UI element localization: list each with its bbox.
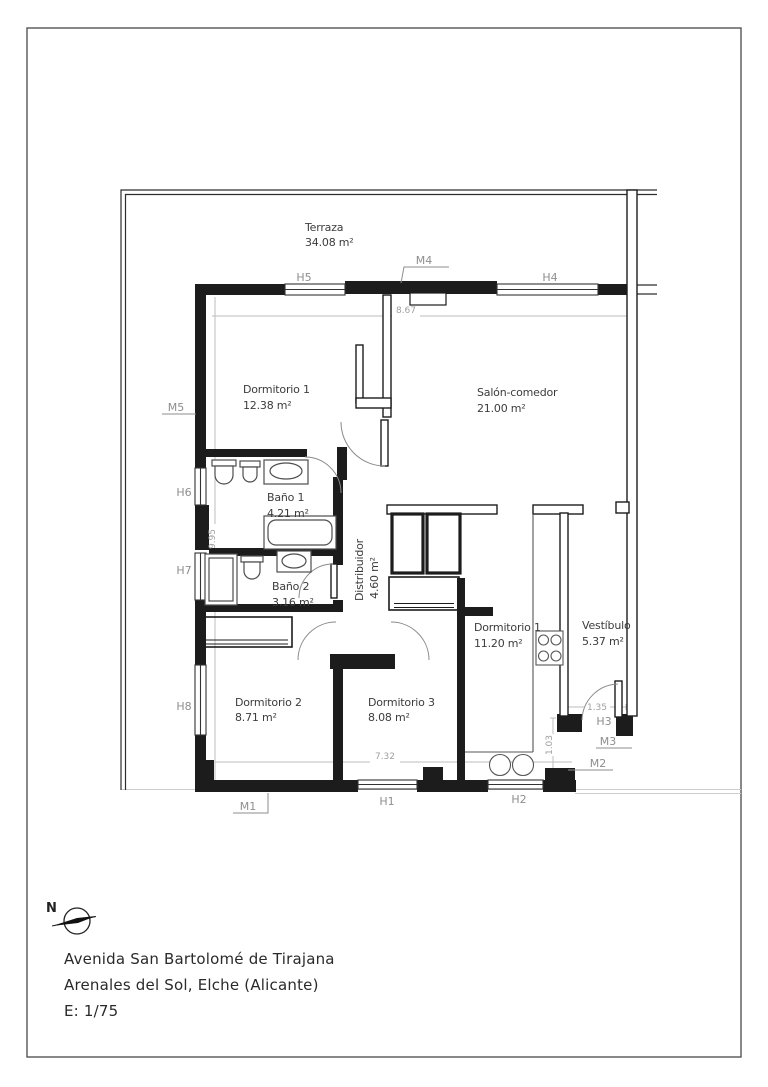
wardrobe-dorm3 [389,577,459,610]
opening-label-m2: M2 [590,757,607,770]
room-area-dormitorio1b: 11.20 m² [474,637,523,650]
dim-interior-width: 8.67 [396,306,416,316]
room-area-salon: 21.00 m² [477,402,526,415]
opening-label-h3: H3 [596,715,611,728]
room-label-vestibulo: Vestíbulo [582,619,631,632]
opening-label-m4: M4 [416,254,433,267]
dim-bottom-width: 7.32 [375,752,395,762]
hob-icon [536,631,563,665]
room-label-dormitorio1: Dormitorio 1 [243,383,310,396]
toilet-icon [212,460,236,484]
opening-label-h7: H7 [176,564,191,577]
opening-label-h6: H6 [176,486,191,499]
opening-label-m1: M1 [240,800,257,813]
floor-plan-drawing: Terraza 34.08 m² Dormitorio 1 12.38 m² S… [0,0,768,1087]
room-label-salon: Salón-comedor [477,386,558,399]
window-h1 [358,780,417,789]
room-label-dormitorio1b: Dormitorio 1 [474,621,541,634]
scale-label: E: 1/75 [64,1002,118,1020]
window-h8 [195,665,206,735]
room-area-terraza: 34.08 m² [305,236,354,249]
sink-icon [264,460,308,484]
door-dormitorio3 [391,622,429,660]
opening-label-h1: H1 [379,795,394,808]
opening-label-h4: H4 [542,271,557,284]
toilet-icon [241,556,263,579]
room-area-vestibulo: 5.37 m² [582,635,624,648]
closet-cell [392,514,423,573]
door-dormitorio1 [341,422,385,466]
opening-label-h2: H2 [511,793,526,806]
room-label-bano2: Baño 2 [272,580,309,593]
room-label-dormitorio3: Dormitorio 3 [368,696,435,709]
room-label-terraza: Terraza [304,221,343,234]
window-h5 [285,284,345,295]
shower-icon [205,554,237,605]
window-h4 [497,284,598,295]
kitchen-sink-icon [490,755,534,776]
room-area-distribuidor: 4.60 m² [368,557,381,599]
room-area-bano1: 4.21 m² [267,507,309,520]
room-area-bano2: 3.16 m² [272,596,314,609]
address-line-2: Arenales del Sol, Elche (Alicante) [64,976,319,994]
bathtub-icon [264,516,336,549]
opening-label-h8: H8 [176,700,191,713]
room-area-dormitorio2: 8.71 m² [235,711,277,724]
dim-kitchen-depth: 1.03 [545,735,555,755]
north-label: N [46,901,57,916]
bathroom-fixtures [205,460,336,605]
opening-label-m5: M5 [168,401,185,414]
closet-cell [427,514,460,573]
bidet-icon [240,461,260,482]
dim-vestibulo-width: 1.35 [587,703,607,713]
sink-icon [277,551,311,572]
room-area-dormitorio1: 12.38 m² [243,399,292,412]
window-h7 [195,553,206,600]
address-line-1: Avenida San Bartolomé de Tirajana [64,950,335,968]
title-block: N Avenida San Bartolomé de Tirajana Aren… [46,901,335,1020]
opening-label-h5: H5 [296,271,311,284]
floor-plan-sheet: Terraza 34.08 m² Dormitorio 1 12.38 m² S… [0,0,768,1087]
window-h2 [488,780,543,789]
window-h6 [195,468,206,505]
room-label-bano1: Baño 1 [267,491,304,504]
north-compass-icon [52,908,96,934]
room-area-dormitorio3: 8.08 m² [368,711,410,724]
dim-interior-height: 9.95 [208,529,218,549]
room-label-dormitorio2: Dormitorio 2 [235,696,302,709]
opening-label-m3: M3 [600,735,617,748]
room-label-distribuidor: Distribuidor [353,538,366,601]
